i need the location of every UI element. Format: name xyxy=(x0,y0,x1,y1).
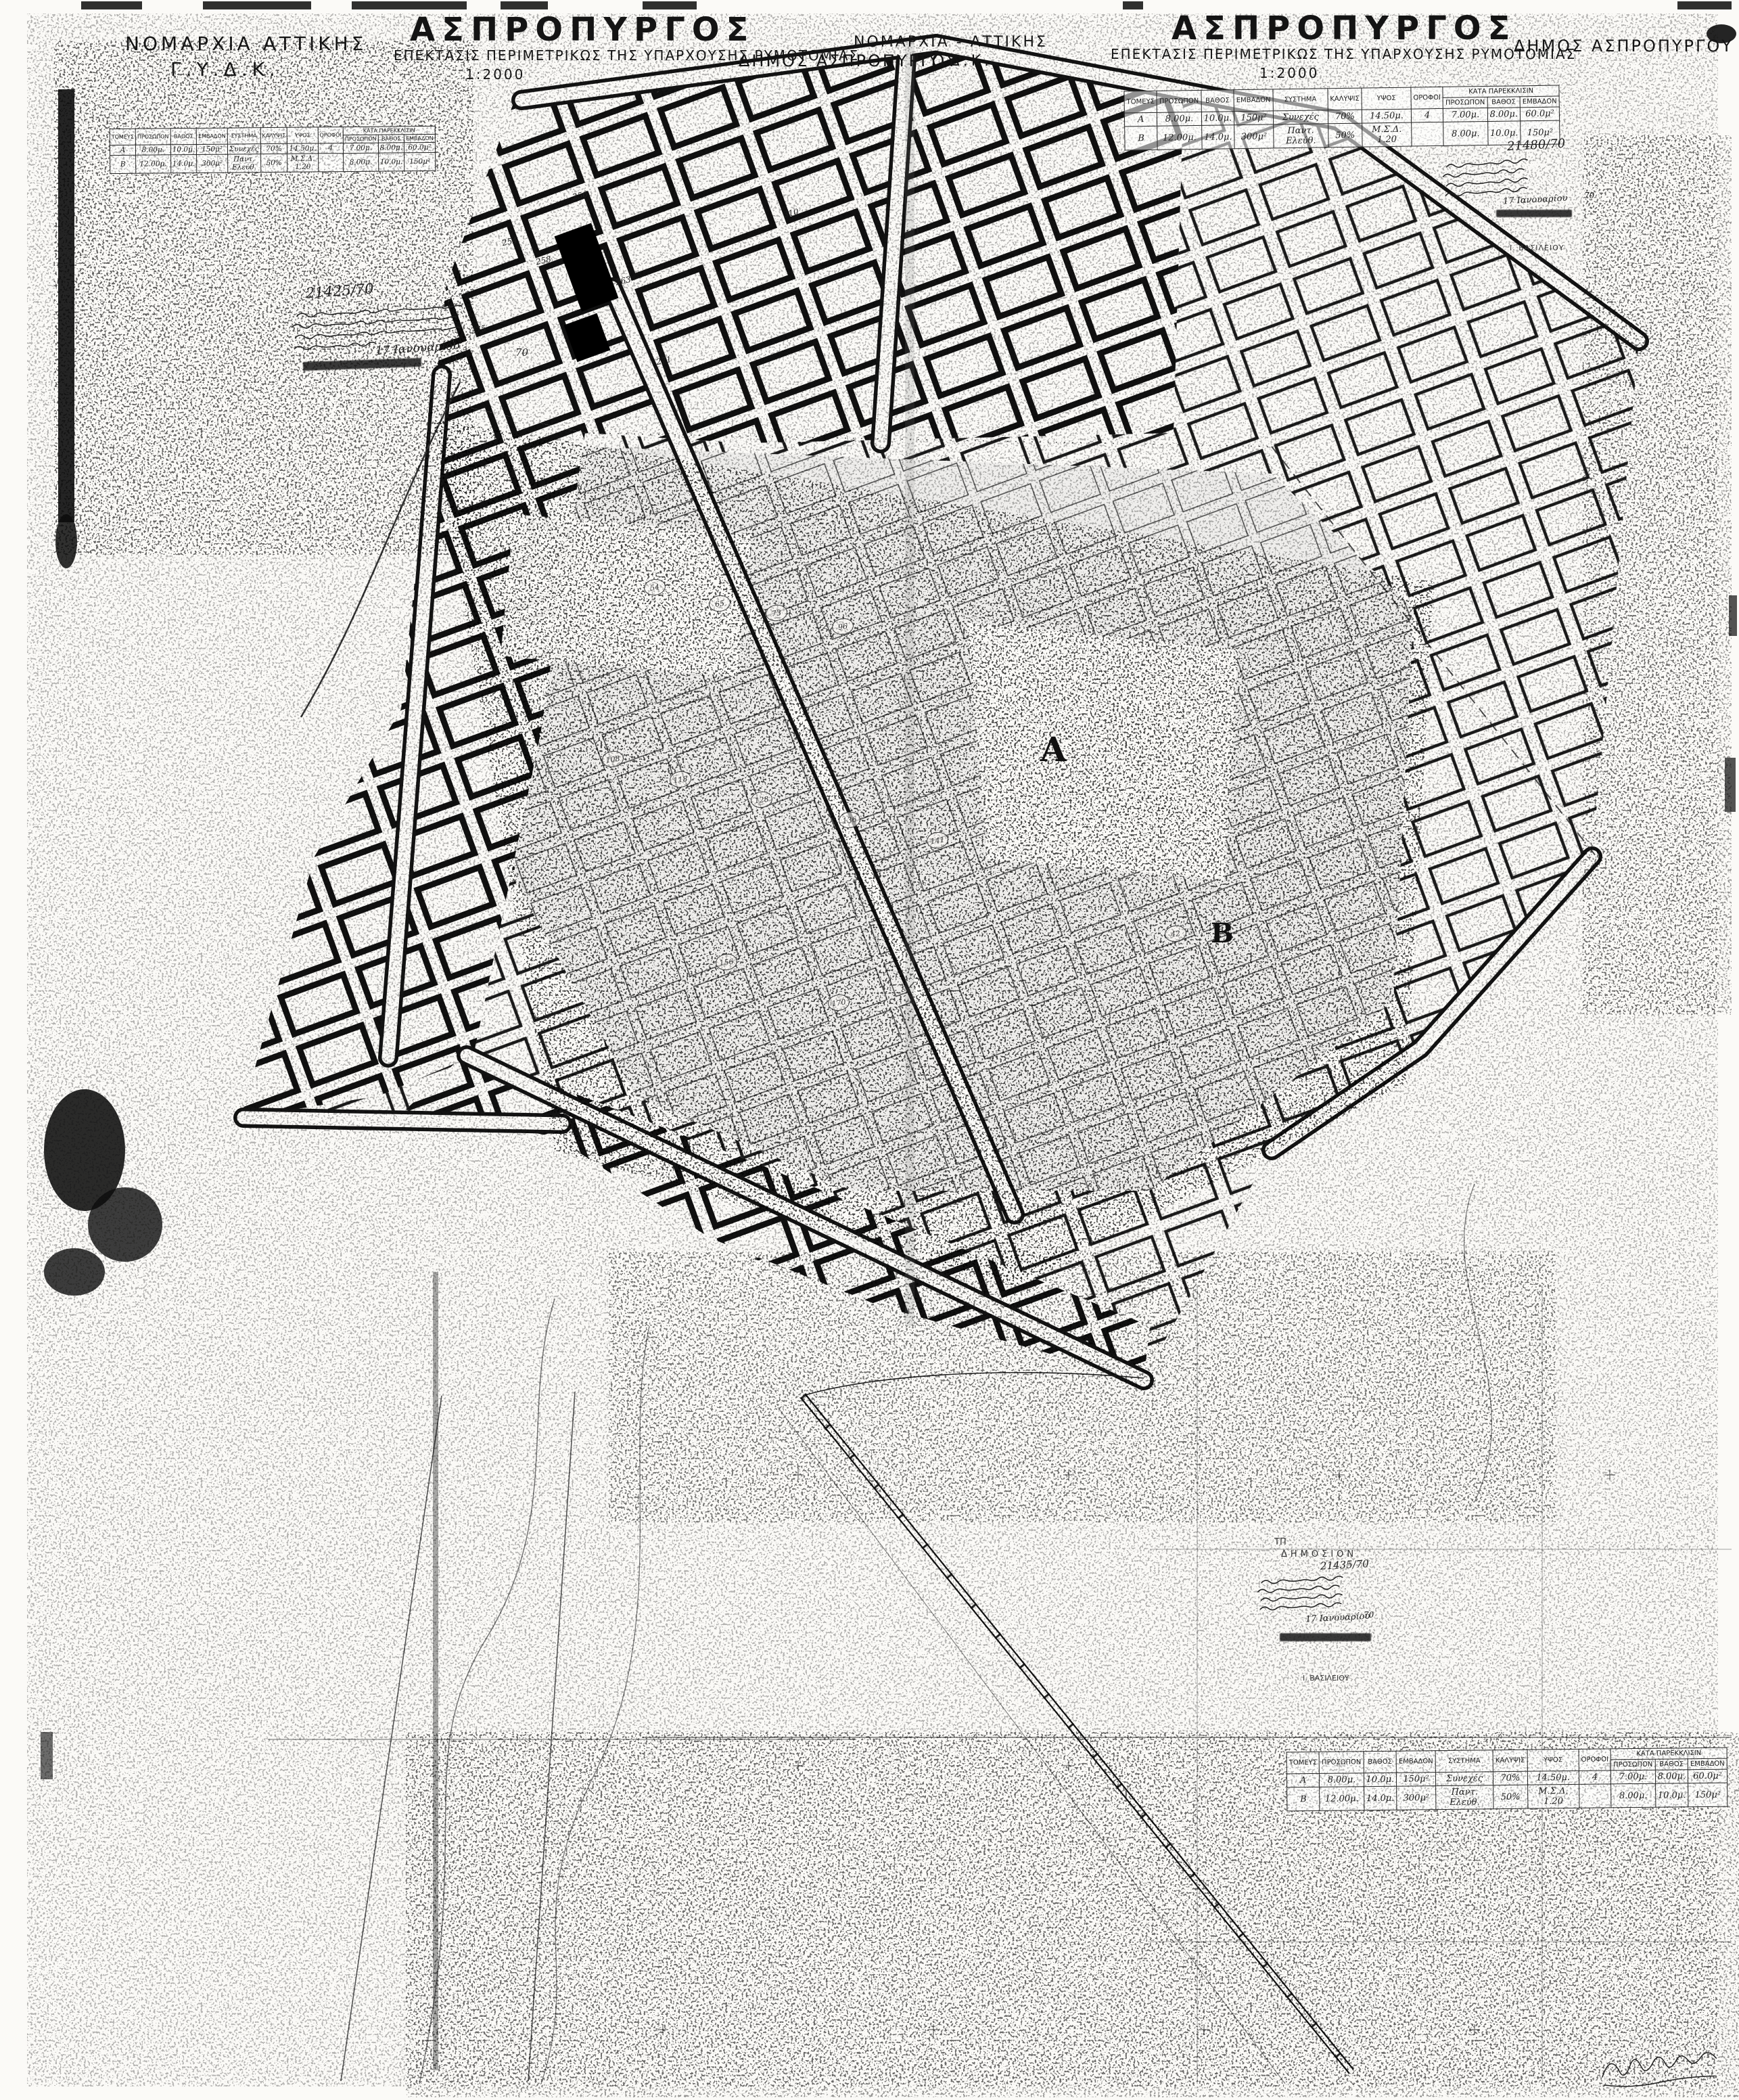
cell-sector: Β xyxy=(1287,1787,1320,1811)
cell-floors: 4 xyxy=(1411,108,1443,122)
cell-depth: 10.0μ. xyxy=(170,144,197,154)
cell-depth: 14.0μ. xyxy=(170,154,197,173)
cell-frontage: 8.00μ. xyxy=(136,145,171,155)
column-subheader: ΠΡΟΣΩΠΟΝ xyxy=(1443,97,1487,108)
cell-area: 300μ² xyxy=(1234,124,1274,149)
column-header: ΕΜΒΑΔΟΝ xyxy=(1234,89,1273,112)
column-header: ΣΥΣΤΗΜΑ xyxy=(227,128,260,144)
stamp-smudge xyxy=(303,358,421,371)
cell-floors xyxy=(1579,1784,1611,1808)
cell-sector: Α xyxy=(110,145,135,155)
column-header: ΥΨΟΣ xyxy=(1527,1749,1579,1771)
column-header: ΠΡΟΣΩΠΟΝ xyxy=(1319,1752,1364,1774)
cell-system: Συνεχές xyxy=(227,144,260,154)
column-header: ΣΥΣΤΗΜΑ xyxy=(1435,1750,1493,1773)
cell-depth: 14.0μ. xyxy=(1201,125,1234,150)
protocol-number: 21425/70 xyxy=(305,281,374,302)
cell-coverage: 50% xyxy=(1328,123,1362,147)
cell-height: 14.50μ. xyxy=(287,143,318,154)
cell-ex_frontage: 7.00μ. xyxy=(1611,1770,1655,1784)
column-header-exception: ΚΑΤΑ ΠΑΡΕΚΚΛΙΣΙΝ xyxy=(1610,1748,1727,1760)
cell-coverage: 70% xyxy=(1328,110,1362,124)
column-subheader: ΒΑΘΟΣ xyxy=(1655,1759,1688,1771)
column-subheader: ΒΑΘΟΣ xyxy=(378,135,404,143)
column-subheader: ΕΜΒΑΔΟΝ xyxy=(1688,1758,1727,1770)
protocol-number: 21480/70 xyxy=(1507,137,1566,154)
building-terms-table-bottom-right: ΤΟΜΕΥΣΠΡΟΣΩΠΟΝΒΑΘΟΣΕΜΒΑΔΟΝΣΥΣΤΗΜΑΚΑΛΥΨΙΣ… xyxy=(1286,1748,1728,1812)
column-header: ΣΥΣΤΗΜΑ xyxy=(1273,89,1328,111)
cell-sector: Β xyxy=(110,155,136,173)
approval-note-bottom: ΤΠ ΔΗΜΟΣΙΟΝ 21435/70 17 Ιανουαρίου 70 Ι.… xyxy=(1251,1532,1427,1687)
column-header: ΥΨΟΣ xyxy=(287,127,318,143)
cell-floors: 4 xyxy=(318,143,344,154)
agency-left-line1: ΝΟΜΑΡΧΙΑ ΑΤΤΙΚΗΣ xyxy=(125,32,367,55)
column-subheader: ΕΜΒΑΔΟΝ xyxy=(1520,96,1559,108)
column-header: ΚΑΛΥΨΙΣ xyxy=(1493,1750,1527,1772)
cell-area: 150μ² xyxy=(1234,111,1274,125)
stamp-smudge xyxy=(1280,1633,1371,1641)
cell-ex_frontage: 7.00μ. xyxy=(1443,108,1488,122)
agency-left-line2: Γ.Υ.Δ.Κ. xyxy=(170,58,280,81)
column-header: ΤΟΜΕΥΣ xyxy=(1286,1752,1320,1774)
cell-system: Παντ. Ελεύθ. xyxy=(1274,124,1328,148)
dimosion-label: ΔΗΜΟΣΙΟΝ xyxy=(1281,1549,1357,1559)
cell-sector: Α xyxy=(1124,112,1157,127)
cell-depth: 10.0μ. xyxy=(1201,112,1234,126)
column-header: ΤΟΜΕΥΣ xyxy=(1124,91,1157,113)
cell-system: Παντ. Ελεύθ. xyxy=(1436,1785,1493,1810)
handwritten-year: 70 xyxy=(1584,191,1594,200)
column-header: ΟΡΟΦΟΙ xyxy=(1411,87,1443,109)
agency-center-line1: ΝΟΜΑΡΧΙΑ - ΑΤΤΙΚΗΣ xyxy=(854,34,1048,51)
table-row: Β12.00μ.14.0μ.300μ²Παντ. Ελεύθ.50%Μ.Σ.Δ.… xyxy=(110,152,436,173)
cell-floors xyxy=(318,154,344,172)
cell-area: 300μ² xyxy=(1397,1786,1436,1810)
column-header: ΟΡΟΦΟΙ xyxy=(1579,1749,1611,1771)
cell-system: Συνεχές xyxy=(1273,110,1328,124)
cell-area: 300μ² xyxy=(197,154,228,173)
cell-coverage: 50% xyxy=(260,154,287,172)
handwritten-year: 70 xyxy=(515,346,528,359)
cell-depth: 14.0μ. xyxy=(1364,1786,1397,1810)
cell-coverage: 70% xyxy=(1493,1771,1527,1785)
column-header: ΠΡΟΣΩΠΟΝ xyxy=(135,129,170,145)
cell-ex_depth: 8.00μ. xyxy=(1655,1770,1688,1784)
cell-sector: Α xyxy=(1286,1773,1320,1787)
title-left-scale: 1:2000 xyxy=(465,66,525,83)
column-subheader: ΠΡΟΣΩΠΟΝ xyxy=(1611,1759,1655,1771)
cell-frontage: 12.00μ. xyxy=(1157,125,1202,150)
cell-ex_depth: 8.00μ. xyxy=(1487,108,1521,122)
title-right-subtitle: ΕΠΕΚΤΑΣΙΣ ΠΕΡΙΜΕΤΡΙΚΩΣ ΤΗΣ ΥΠΑΡΧΟΥΣΗΣ ΡΥ… xyxy=(1111,46,1576,62)
column-header: ΒΑΘΟΣ xyxy=(1364,1751,1397,1773)
scanned-map-page: ΝΟΜΑΡΧΙΑ ΑΤΤΙΚΗΣ Γ.Υ.Δ.Κ. ΑΣΠΡΟΠΥΡΓΟΣ ΕΠ… xyxy=(0,0,1739,2100)
column-header: ΥΨΟΣ xyxy=(1362,87,1411,110)
handwritten-year: 70 xyxy=(1364,1610,1374,1620)
cell-height: Μ.Σ.Δ. 1.20 xyxy=(1362,122,1412,147)
cell-ex_depth: 8.00μ. xyxy=(378,143,404,153)
official-name: Ι. ΒΑΣΙΛΕΙΟΥ xyxy=(1510,244,1564,252)
cell-height: Μ.Σ.Δ. 1.20 xyxy=(287,154,318,172)
cell-ex_frontage: 8.00μ. xyxy=(1611,1783,1656,1808)
cell-area: 150μ² xyxy=(197,144,228,154)
agency-center-line2: Γ.Υ.Δ.Κ. xyxy=(909,53,992,70)
column-header: ΕΜΒΑΔΟΝ xyxy=(1396,1751,1435,1773)
cell-area: 150μ² xyxy=(1397,1773,1436,1787)
cell-ex_frontage: 7.00μ. xyxy=(343,143,378,153)
cell-height: 14.50μ. xyxy=(1362,109,1412,123)
cell-ex_area: 150μ² xyxy=(1688,1783,1728,1807)
column-header: ΠΡΟΣΩΠΟΝ xyxy=(1157,90,1201,112)
title-left-city: ΑΣΠΡΟΠΥΡΓΟΣ xyxy=(410,11,755,49)
cell-ex_depth: 10.0μ. xyxy=(378,153,404,171)
cell-height: Μ.Σ.Δ. 1.20 xyxy=(1527,1784,1579,1808)
cell-ex_depth: 10.0μ. xyxy=(1655,1783,1688,1808)
column-header: ΚΑΛΥΨΙΣ xyxy=(1328,88,1362,110)
cell-system: Παντ. Ελεύθ. xyxy=(227,154,260,173)
column-header: ΕΜΒΑΔΟΝ xyxy=(196,128,227,144)
signature-scribble xyxy=(1595,2037,1726,2093)
building-terms-table-top-left: ΤΟΜΕΥΣΠΡΟΣΩΠΟΝΒΑΘΟΣΕΜΒΑΔΟΝΣΥΣΤΗΜΑΚΑΛΥΨΙΣ… xyxy=(110,126,436,174)
column-subheader: ΒΑΘΟΣ xyxy=(1487,97,1521,108)
column-header: ΒΑΘΟΣ xyxy=(1201,90,1234,112)
protocol-number: 21435/70 xyxy=(1320,1557,1370,1572)
table-row: Β12.00μ.14.0μ.300μ²Παντ. Ελεύθ.50%Μ.Σ.Δ.… xyxy=(1287,1783,1728,1811)
cell-ex_area: 60.0μ² xyxy=(404,142,436,152)
cell-floors: 4 xyxy=(1579,1771,1611,1784)
cell-ex_area: 60.0μ² xyxy=(1688,1769,1728,1783)
cell-coverage: 50% xyxy=(1493,1785,1528,1809)
column-header: ΒΑΘΟΣ xyxy=(170,128,197,144)
column-subheader: ΠΡΟΣΩΠΟΝ xyxy=(343,135,378,143)
cell-ex_frontage: 8.00μ. xyxy=(344,153,379,171)
cell-frontage: 12.00μ. xyxy=(1320,1787,1364,1811)
tp-mark: ΤΠ xyxy=(1274,1537,1286,1547)
column-header: ΤΟΜΕΥΣ xyxy=(110,129,135,145)
title-right-city: ΑΣΠΡΟΠΥΡΓΟΣ xyxy=(1172,9,1516,47)
cell-frontage: 8.00μ. xyxy=(1157,112,1202,126)
stamp-smudge xyxy=(1496,210,1572,217)
cell-frontage: 12.00μ. xyxy=(136,155,171,173)
column-header: ΟΡΟΦΟΙ xyxy=(318,127,344,143)
sector-a-label: Α xyxy=(1040,729,1067,769)
cell-coverage: 70% xyxy=(260,143,287,154)
cell-depth: 10.0μ. xyxy=(1364,1773,1397,1787)
cell-sector: Β xyxy=(1125,126,1158,150)
official-name: Ι. ΒΑΣΙΛΕΙΟΥ xyxy=(1303,1674,1349,1683)
approval-note-top-left: 21425/70 17 Ιανουαρίου 70 xyxy=(284,277,555,379)
handwriting-scribble xyxy=(1256,1568,1414,1618)
title-right-scale: 1:2000 xyxy=(1259,65,1319,81)
approval-note-top-right: 21480/70 17 Ιανουαρίου 70 Ι. ΒΑΣΙΛΕΙΟΥ xyxy=(1434,134,1650,256)
municipality-right: ΔΗΜΟΣ ΑΣΠΡΟΠΥΡΓΟΥ xyxy=(1514,37,1734,55)
sector-b-label: Β xyxy=(1211,917,1234,949)
column-subheader: ΕΜΒΑΔΟΝ xyxy=(404,134,435,142)
cell-ex_area: 60.0μ² xyxy=(1520,107,1559,121)
cell-frontage: 8.00μ. xyxy=(1320,1773,1364,1787)
cell-height: 14.50μ. xyxy=(1527,1771,1579,1785)
column-header: ΚΑΛΥΨΙΣ xyxy=(260,127,287,143)
cell-ex_area: 150μ² xyxy=(404,152,436,170)
cell-system: Συνεχές xyxy=(1435,1772,1493,1786)
